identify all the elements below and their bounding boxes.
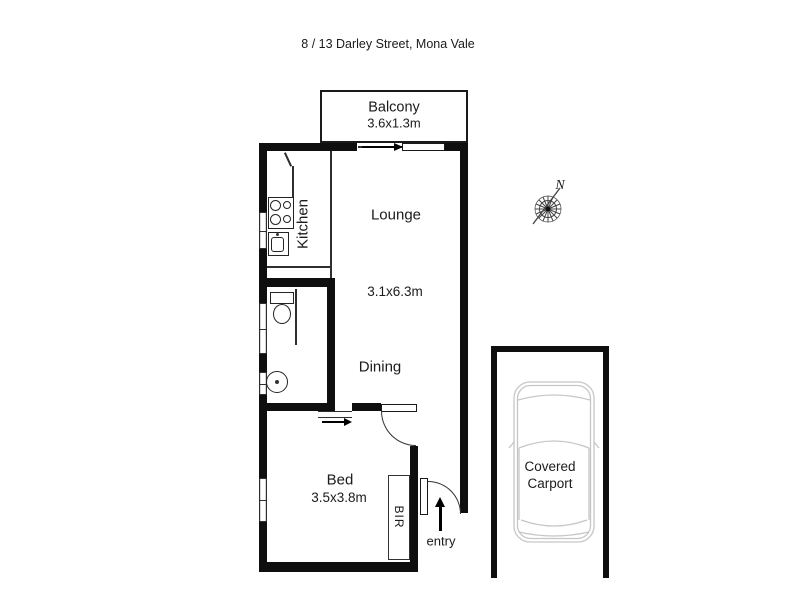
kitchen-counter-diagonal [284,152,292,166]
wall-left-upper [259,143,267,212]
stove-burner [283,215,291,223]
balcony-slider-arrow-icon [394,143,403,151]
kitchen-label: Kitchen [295,199,312,249]
bed-label: Bed [325,471,356,488]
wall-bir-side [410,446,418,572]
bedroom-slider-arrow-icon [344,418,352,426]
entry-arrow-icon [435,497,445,507]
wall-bedroom-top-left [259,403,332,411]
bed-dims: 3.5x3.8m [309,490,369,506]
balcony-slider-leaf [402,143,445,151]
kitchen-counter-edge [292,166,294,197]
carport-label-line2: Carport [525,476,574,492]
balcony-dims: 3.6x1.3m [365,117,422,132]
entry-arrow-shaft [439,506,442,531]
bir-label: BIR [392,505,406,528]
carport-wall-right [603,346,609,578]
dining-door-arc [381,411,416,446]
dining-label: Dining [357,358,404,375]
wall-bathroom-right [327,278,335,411]
wall-bedroom-top-right [352,403,381,411]
page-title: 8 / 13 Darley Street, Mona Vale [299,37,476,51]
window-tick [259,231,267,232]
kitchen-counter-bottom [267,266,331,268]
bedroom-slider-arrow-shaft [322,421,344,423]
stove-burner [283,201,291,209]
window-bathroom-1 [259,303,267,354]
window-tick [259,500,267,501]
lounge-label: Lounge [369,206,423,223]
stove-burner [270,214,281,225]
carport-label-line1: Covered [522,459,577,475]
entry-door-leaf [420,478,428,515]
kitchen-tap-icon [276,233,279,236]
window-tick [259,329,267,330]
carport-wall-left [491,346,497,578]
floorplan-canvas: 8 / 13 Darley Street, Mona Vale Balcony … [0,0,800,600]
wall-bottom [259,562,418,572]
window-bedroom [259,478,267,522]
wall-left-kitchen-bath [259,247,267,303]
wall-left-bath-mid [259,352,267,372]
balcony-label: Balcony [366,100,422,117]
lounge-dims: 3.1x6.3m [365,284,425,300]
wall-right [460,143,468,513]
kitchen-divider-line [330,151,332,278]
basin-tap-icon [275,380,279,384]
carport-wall-top [491,346,609,352]
entry-label: entry [425,535,458,550]
toilet-tank-icon [270,292,294,304]
window-kitchen [259,212,267,249]
wall-top-left [259,143,357,151]
kitchen-sink-basin [271,237,284,252]
stove-burner [270,200,281,211]
wall-kitchen-bathroom [259,278,335,287]
balcony-slider-arrow-shaft [362,146,394,148]
compass-icon [523,177,575,235]
compass-north-label: N [555,178,564,194]
toilet-bowl-icon [273,304,291,324]
entry-door-arc [428,481,461,514]
bathroom-door-leaf [295,289,297,345]
